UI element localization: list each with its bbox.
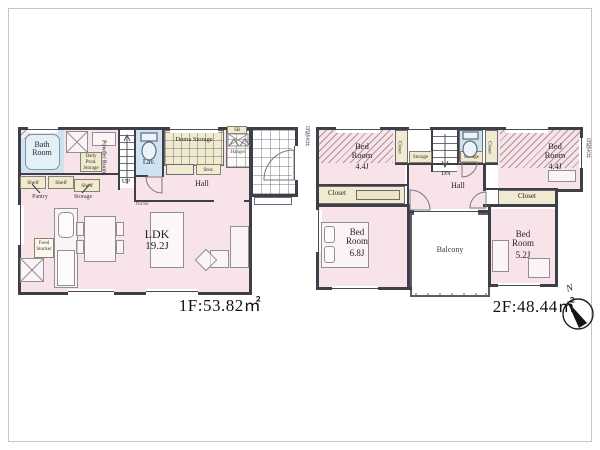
dn-label: DN bbox=[436, 171, 456, 178]
sloped-note-left: 勾配天井 bbox=[304, 116, 309, 156]
entrance-wing-outline bbox=[250, 127, 298, 197]
wall-segment bbox=[136, 175, 148, 177]
wall-segment bbox=[483, 188, 558, 190]
bed-size: 4.4J bbox=[533, 163, 577, 171]
hanger-label: Hanger bbox=[227, 150, 249, 155]
sofa bbox=[230, 226, 249, 268]
kitchen-stove bbox=[57, 250, 75, 286]
bedroom-52-label: Bed Room 5.2J bbox=[500, 230, 546, 261]
window bbox=[336, 127, 380, 133]
storage-label: Storage bbox=[62, 194, 104, 200]
shelf-box: Shelf bbox=[48, 176, 74, 189]
closet-left-label: Closet bbox=[320, 190, 354, 197]
window bbox=[506, 127, 548, 133]
porch-step bbox=[254, 197, 292, 205]
closet-column-left-label: Closet bbox=[396, 132, 401, 162]
shelf-box: Shelf bbox=[74, 179, 100, 192]
pantry-label: Pantry bbox=[22, 194, 58, 200]
window bbox=[332, 286, 378, 292]
bed-name: Bed Room bbox=[341, 228, 373, 247]
daily-storage-label: Daily Prod. Storage bbox=[83, 154, 98, 171]
shelf-label: Shelf bbox=[55, 180, 67, 186]
hall1-label: Hall bbox=[186, 180, 218, 188]
daily-storage-box: Daily Prod. Storage bbox=[80, 152, 102, 172]
bed-name: Bed Room bbox=[347, 142, 377, 160]
up-label: UP bbox=[116, 179, 136, 186]
window bbox=[409, 127, 430, 133]
balcony-sliding-door bbox=[414, 209, 478, 215]
stairs2-area bbox=[433, 130, 457, 172]
bed-name: Bed Room bbox=[540, 142, 570, 160]
shelf-box: Shelf bbox=[20, 176, 46, 189]
wall-segment bbox=[316, 184, 407, 186]
kitchen-sink bbox=[58, 212, 74, 238]
stor-box: Stor. bbox=[196, 164, 221, 175]
wall-segment bbox=[457, 127, 459, 163]
storage2-label: Storage bbox=[413, 155, 428, 160]
floor-hatch-box bbox=[20, 258, 44, 282]
bedroom-44-left-label: Bed Room 4.4J bbox=[340, 142, 384, 171]
niche-label: Niche bbox=[130, 202, 154, 208]
dining-table bbox=[84, 216, 116, 262]
wall-segment bbox=[407, 204, 410, 290]
bedroom-44-right-label: Bed Room 4.4J bbox=[533, 142, 577, 171]
entrance-door bbox=[292, 146, 298, 180]
wall-segment bbox=[431, 127, 433, 172]
powder-room-label: Powder Room bbox=[100, 136, 106, 178]
counter-bedroom-right bbox=[548, 170, 576, 182]
doma-storage-label: Doma Storage bbox=[168, 137, 220, 144]
dining-chair bbox=[116, 222, 124, 236]
shelf-label: Shelf bbox=[27, 180, 39, 186]
wall-segment bbox=[483, 204, 558, 207]
wall-segment bbox=[488, 204, 491, 287]
ldk-name: LDK bbox=[134, 228, 180, 241]
balcony-area bbox=[410, 213, 490, 297]
window bbox=[18, 205, 24, 245]
food-stocker-box: Food Stocker bbox=[34, 238, 54, 258]
bed-size: 4.4J bbox=[340, 163, 384, 171]
stor-label: Stor. bbox=[203, 167, 213, 173]
hall2-label: Hall bbox=[442, 182, 474, 190]
storage2-box: Storage bbox=[460, 151, 483, 163]
wall-segment bbox=[244, 200, 252, 202]
shoe-box-label-box: SB bbox=[227, 126, 247, 134]
washer-pan bbox=[66, 131, 88, 153]
food-stocker-label: Food Stocker bbox=[36, 241, 51, 252]
shoe-box-label: SB bbox=[234, 128, 240, 133]
wall-segment bbox=[483, 163, 486, 191]
wall-segment bbox=[162, 127, 164, 177]
bedroom-68-label: Bed Room 6.8J bbox=[334, 228, 380, 259]
closet-column-right-label: Closet bbox=[486, 132, 491, 162]
window bbox=[170, 127, 218, 133]
shelf-label: Shelf bbox=[81, 183, 93, 189]
wall-segment bbox=[316, 127, 319, 290]
dining-chair bbox=[76, 222, 84, 236]
floor2-area-label: 2F:48.44㎡ bbox=[470, 298, 598, 316]
dining-chair bbox=[76, 240, 84, 254]
lav-label: Lav. bbox=[136, 159, 162, 166]
storage2-box: Storage bbox=[409, 151, 432, 163]
sloped-note-right: 勾配天井 bbox=[585, 128, 590, 168]
bed-name: Bed Room bbox=[507, 230, 539, 249]
window bbox=[68, 289, 114, 295]
wall-segment bbox=[407, 163, 409, 207]
bath-room-label: Bath Room bbox=[26, 141, 58, 158]
dining-chair bbox=[116, 240, 124, 254]
balcony-label: Balcony bbox=[426, 246, 474, 254]
floor-plan-canvas: Daily Prod. Storage Shelf Shelf Shelf St… bbox=[0, 0, 600, 450]
closet-shelf-left bbox=[356, 190, 400, 200]
window bbox=[146, 289, 198, 295]
ldk-size: 19.2J bbox=[134, 241, 180, 253]
wall-segment bbox=[555, 189, 583, 192]
floor1-area-label: 1F:53.82㎡ bbox=[156, 297, 284, 315]
window bbox=[498, 283, 540, 289]
wall-segment bbox=[316, 204, 407, 207]
storage2-label: Storage bbox=[464, 155, 479, 160]
cabinet bbox=[528, 258, 550, 278]
closet-right-label: Closet bbox=[509, 193, 545, 200]
bed-size: 6.8J bbox=[334, 249, 380, 258]
bed-size: 5.2J bbox=[500, 251, 546, 260]
window bbox=[28, 127, 58, 133]
ldk-label: LDK 19.2J bbox=[134, 228, 180, 252]
